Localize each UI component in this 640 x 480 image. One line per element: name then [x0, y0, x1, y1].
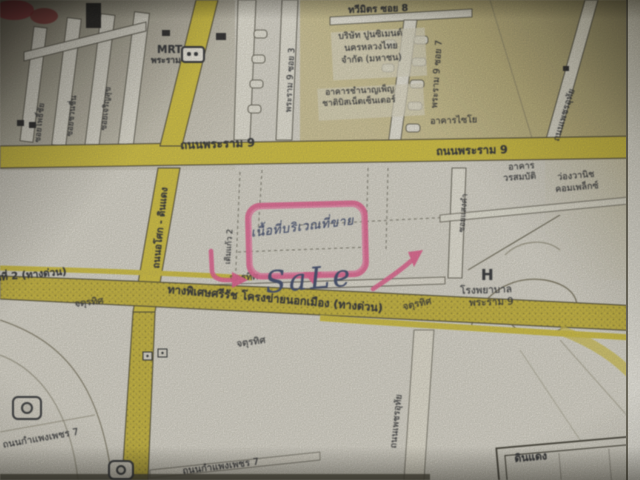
paper-edge [626, 0, 640, 480]
handwriting-layer: เนื้อที่บริเวณที่ขาย SaLe [0, 0, 640, 480]
map-photo: ซอยโพธิ์ชัย ซอยชวนชื่น ซอยเจริญสุข พระรา… [0, 0, 640, 480]
handwritten-area-note: เนื้อที่บริเวณที่ขาย [250, 213, 355, 239]
handwritten-sale-text: SaLe [264, 260, 355, 299]
